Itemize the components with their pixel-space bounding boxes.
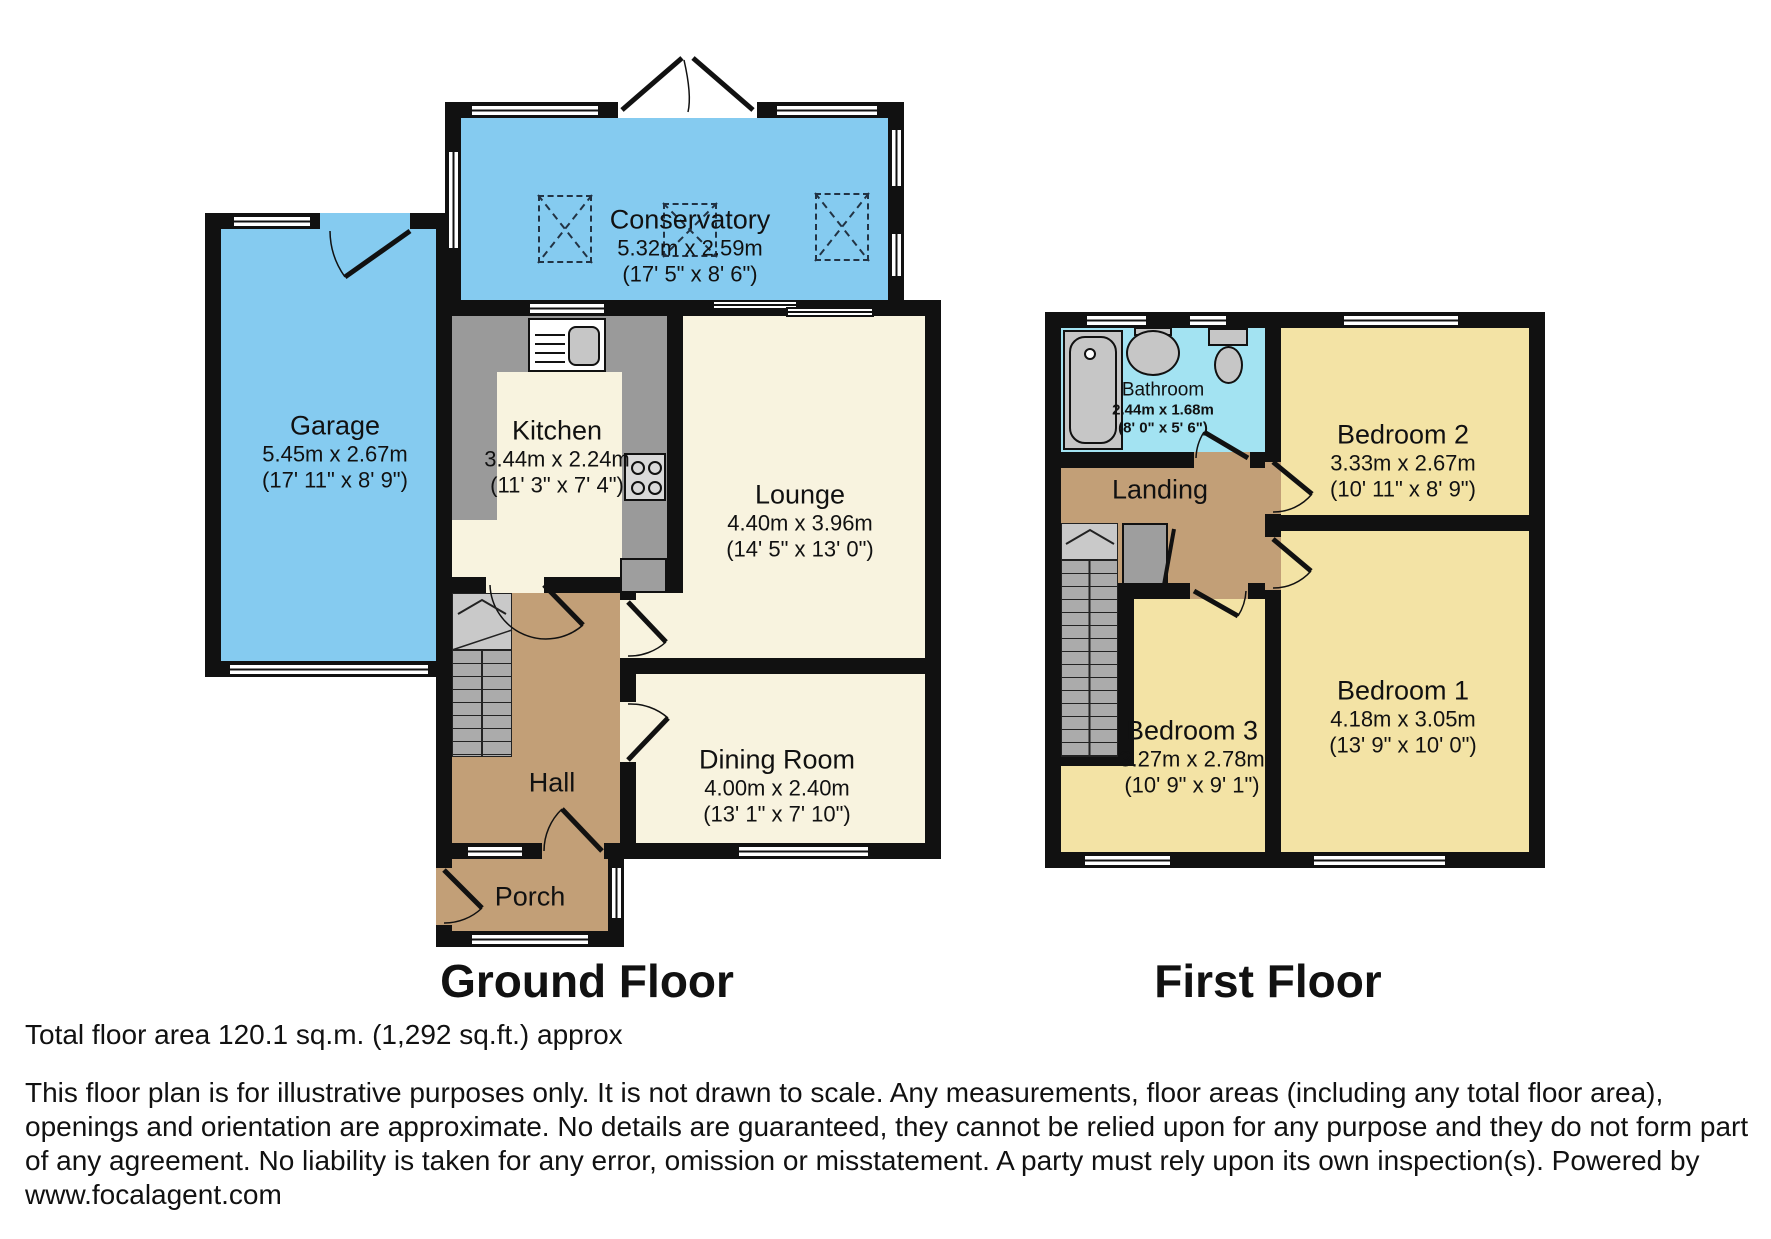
- window: [470, 104, 600, 117]
- label-conservatory: Conservatory 5.32m x 2.59m (17' 5" x 8' …: [610, 205, 771, 288]
- stairs-winder: [452, 593, 512, 650]
- bathroom-door-gap: [1194, 452, 1250, 468]
- wall: [436, 213, 452, 859]
- window: [232, 215, 312, 228]
- wall: [925, 300, 941, 859]
- label-bedroom3: Bedroom 3 3.27m x 2.78m (10' 9" x 9' 1"): [1119, 716, 1265, 799]
- floor-plan-page: Conservatory 5.32m x 2.59m (17' 5" x 8' …: [0, 0, 1771, 1239]
- front-door-gap: [542, 843, 604, 859]
- wall: [667, 316, 683, 593]
- sink: [1126, 330, 1180, 376]
- toilet: [1214, 346, 1243, 384]
- bedroom2-door-gap: [1265, 462, 1281, 514]
- ground-floor-label: Ground Floor: [440, 954, 734, 1008]
- window: [1342, 314, 1460, 327]
- first-floor-label: First Floor: [1154, 954, 1381, 1008]
- stairs: [452, 650, 512, 757]
- patio-slider-panel: [786, 307, 874, 317]
- window: [890, 232, 903, 278]
- cupboard: [1122, 523, 1168, 585]
- window: [775, 104, 879, 117]
- label-bedroom1: Bedroom 1 4.18m x 3.05m (13' 9" x 10' 0"…: [1329, 676, 1477, 759]
- label-lounge: Lounge 4.40m x 3.96m (14' 5" x 13' 0"): [726, 480, 874, 563]
- window: [890, 128, 903, 188]
- label-bedroom2: Bedroom 2 3.33m x 2.67m (10' 11" x 8' 9"…: [1330, 420, 1476, 503]
- porch-door-gap: [436, 868, 452, 925]
- hob: [624, 453, 666, 501]
- window: [610, 866, 623, 920]
- garage-door-gap: [320, 213, 410, 229]
- wall: [205, 213, 221, 677]
- french-door-gap: [618, 102, 757, 118]
- lounge-door-gap: [620, 600, 636, 658]
- window: [737, 845, 870, 858]
- label-kitchen: Kitchen 3.44m x 2.24m (11' 3" x 7' 4"): [484, 416, 630, 499]
- window: [1085, 314, 1148, 327]
- label-hall: Hall: [529, 768, 576, 799]
- dining-door-gap: [620, 702, 636, 762]
- label-dining: Dining Room 4.00m x 2.40m (13' 1" x 7' 1…: [699, 745, 855, 828]
- cupboard: [620, 558, 667, 593]
- label-bathroom: Bathroom 2.44m x 1.68m (8' 0" x 5' 6"): [1112, 379, 1214, 438]
- label-porch: Porch: [495, 882, 566, 913]
- kitchen-sink: [528, 318, 606, 372]
- skylight: [815, 193, 869, 261]
- wall: [1529, 312, 1545, 868]
- wall: [1265, 515, 1545, 531]
- label-garage: Garage 5.45m x 2.67m (17' 11" x 8' 9"): [262, 411, 408, 494]
- sink-basin: [568, 326, 600, 366]
- stairs: [1061, 560, 1118, 757]
- wall: [620, 658, 941, 674]
- kitchen-door-gap: [486, 577, 544, 593]
- skylight: [538, 195, 592, 263]
- garage-door: [228, 663, 430, 676]
- window: [470, 933, 590, 946]
- window: [1188, 314, 1228, 327]
- stairs-top: [1061, 523, 1118, 560]
- bath-drain: [1084, 348, 1096, 360]
- window: [528, 302, 606, 315]
- sink-drainer: [535, 327, 565, 365]
- window: [447, 150, 460, 250]
- disclaimer: This floor plan is for illustrative purp…: [25, 1076, 1765, 1212]
- window: [1312, 854, 1447, 867]
- toilet-cistern: [1208, 328, 1248, 346]
- bedroom3-door-gap: [1190, 583, 1248, 599]
- room-lounge-nook: [636, 593, 683, 658]
- window: [1083, 854, 1172, 867]
- bedroom1-door-gap: [1265, 537, 1281, 590]
- label-landing: Landing: [1112, 475, 1208, 506]
- window: [466, 845, 524, 858]
- total-floor-area: Total floor area 120.1 sq.m. (1,292 sq.f…: [25, 1018, 623, 1052]
- wall: [1045, 312, 1061, 868]
